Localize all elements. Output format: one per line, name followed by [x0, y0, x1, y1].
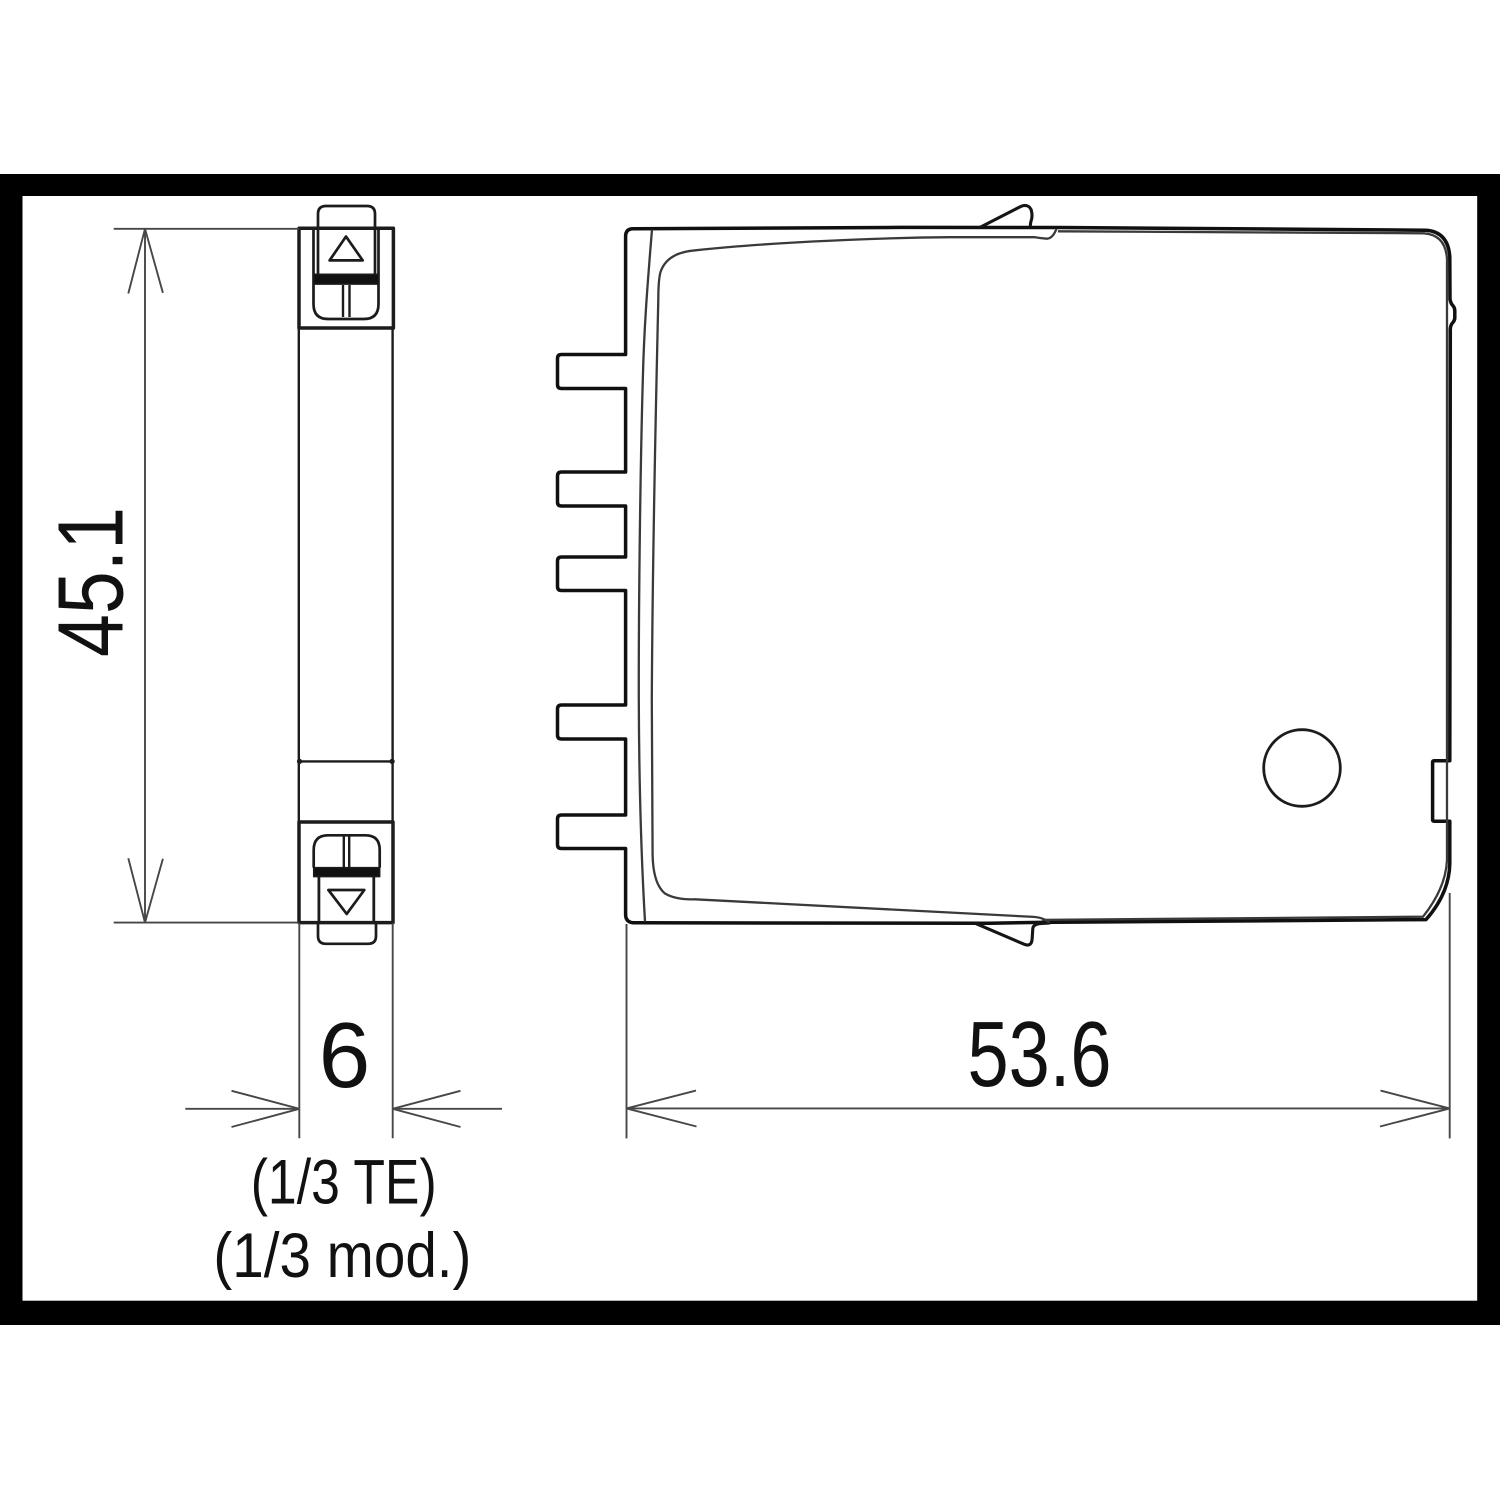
- svg-text:53.6: 53.6: [968, 1002, 1112, 1106]
- svg-text:(1/3 mod.): (1/3 mod.): [213, 1221, 471, 1291]
- svg-text:6: 6: [319, 1003, 371, 1107]
- svg-text:45.1: 45.1: [39, 507, 143, 657]
- svg-text:(1/3 TE): (1/3 TE): [251, 1148, 437, 1218]
